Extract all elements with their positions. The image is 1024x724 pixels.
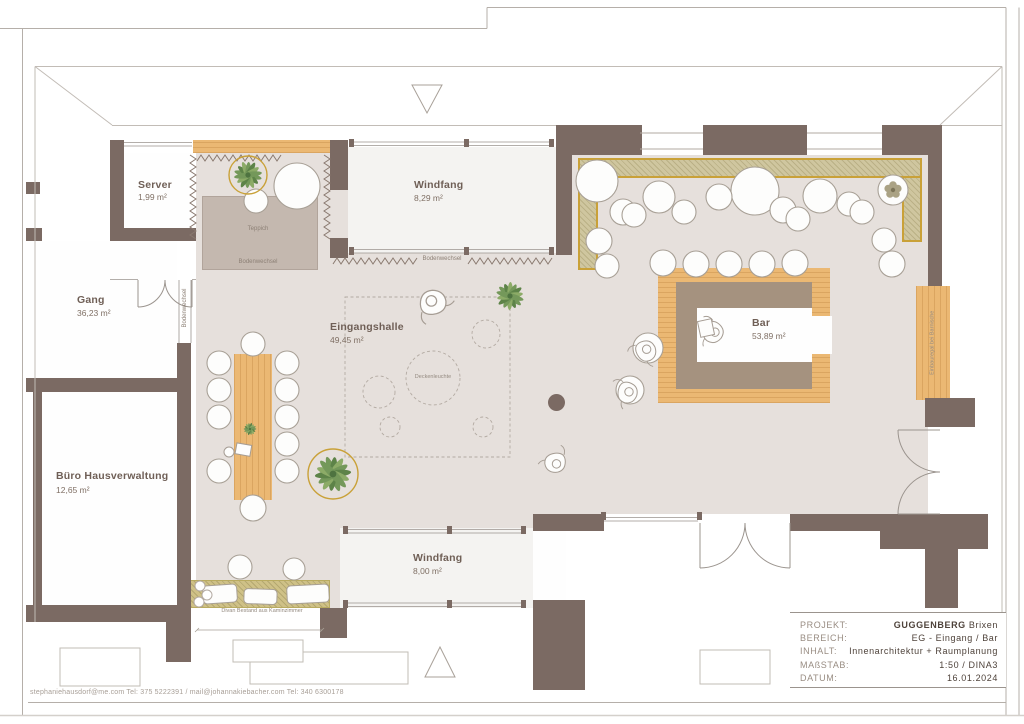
room-label-windfang-bottom: Windfang <box>413 553 462 564</box>
title-block-value: EG - Eingang / Bar <box>912 632 998 645</box>
wall <box>110 140 124 240</box>
bar-bench-left <box>578 176 598 270</box>
direction-triangle-top <box>412 85 442 113</box>
wall <box>533 514 604 531</box>
direction-triangle-bottom <box>425 647 455 677</box>
title-block-value: Innenarchitektur + Raumplanung <box>849 645 998 658</box>
title-block-label: INHALT: <box>800 645 837 658</box>
room-area-windfang-bottom: 8,00 m² <box>413 567 442 576</box>
annotation-bodenwechsel: Bodenwechsel <box>410 256 474 262</box>
project-name: GUGGENBERG <box>894 620 966 630</box>
room-area-eingangshalle: 49,45 m² <box>330 336 364 345</box>
annotation-deckenleuchte: Deckenleuchte <box>401 375 465 381</box>
room-area-buero: 12,65 m² <box>56 486 90 495</box>
title-block-row: BEREICH: EG - Eingang / Bar <box>800 632 998 645</box>
project-location: Brixen <box>966 620 998 630</box>
room-label-windfang-top: Windfang <box>414 180 463 191</box>
room-label-bar: Bar <box>752 318 770 329</box>
wall <box>880 514 988 549</box>
wall <box>26 182 40 194</box>
column <box>548 394 565 411</box>
contact-line: stephaniehausdorf@me.com Tel: 375 522239… <box>30 689 344 696</box>
room-label-gang: Gang <box>77 295 105 306</box>
title-block-label: DATUM: <box>800 672 837 685</box>
bar-bench-right <box>902 176 922 242</box>
floor-plan-sheet: Server 1,99 m² Windfang 8,29 m² Gang 36,… <box>0 0 1024 724</box>
wall <box>566 125 642 155</box>
dining-table <box>234 354 272 500</box>
wall <box>26 378 177 392</box>
title-block-value: 1:50 / DINA3 <box>939 659 998 672</box>
room-label-buero: Büro Hausverwaltung <box>56 471 168 482</box>
annotation-bodenwechsel-vertical: Bodenwechsel <box>182 276 188 340</box>
title-block-value: GUGGENBERG Brixen <box>894 619 998 632</box>
wall <box>882 125 942 155</box>
wall <box>330 140 348 190</box>
room-area-gang: 36,23 m² <box>77 309 111 318</box>
wall <box>533 600 585 690</box>
title-block-row: MAßSTAB: 1:50 / DINA3 <box>800 659 998 672</box>
room-area-server: 1,99 m² <box>138 193 167 202</box>
wall <box>26 228 42 241</box>
room-area-bar: 53,89 m² <box>752 332 786 341</box>
wall <box>925 549 958 608</box>
room-label-server: Server <box>138 180 172 191</box>
room-area-windfang-top: 8,29 m² <box>414 194 443 203</box>
title-block-row: PROJEKT: GUGGENBERG Brixen <box>800 619 998 632</box>
floor-windfang-top <box>348 147 556 253</box>
title-block-row: DATUM: 16.01.2024 <box>800 672 998 685</box>
annotation-bodenwechsel: Bodenwechsel <box>226 259 290 265</box>
wall <box>703 125 807 155</box>
bar-bench-top <box>578 158 922 178</box>
exterior-patch <box>533 531 566 611</box>
title-block-value: 16.01.2024 <box>947 672 998 685</box>
divan-bench <box>190 580 330 608</box>
wall <box>177 343 191 638</box>
title-block-row: INHALT: Innenarchitektur + Raumplanung <box>800 645 998 658</box>
title-block: PROJEKT: GUGGENBERG Brixen BEREICH: EG -… <box>790 612 1006 688</box>
annotation-divan: Divan Bestand aus Kaminzimmer <box>190 609 334 615</box>
bar-bottom-door-arc <box>700 523 745 568</box>
wall <box>928 155 942 286</box>
wall <box>166 622 191 662</box>
floor-buero <box>42 392 177 606</box>
dimension-line <box>195 628 324 632</box>
room-label-eingangshalle: Eingangshalle <box>330 322 404 333</box>
wall <box>330 238 348 258</box>
wall <box>26 605 186 622</box>
floor-server <box>123 153 193 229</box>
title-block-label: MAßSTAB: <box>800 659 849 672</box>
annotation-einbauregal: Einbauregal bei Barnische <box>930 283 936 403</box>
bar-pass-through <box>812 316 832 354</box>
wall <box>110 228 196 241</box>
title-block-label: BEREICH: <box>800 632 847 645</box>
wood-beam <box>193 140 330 153</box>
title-block-label: PROJEKT: <box>800 619 848 632</box>
annotation-teppich: Teppich <box>226 226 290 232</box>
wall <box>790 514 882 531</box>
wall <box>33 392 42 605</box>
